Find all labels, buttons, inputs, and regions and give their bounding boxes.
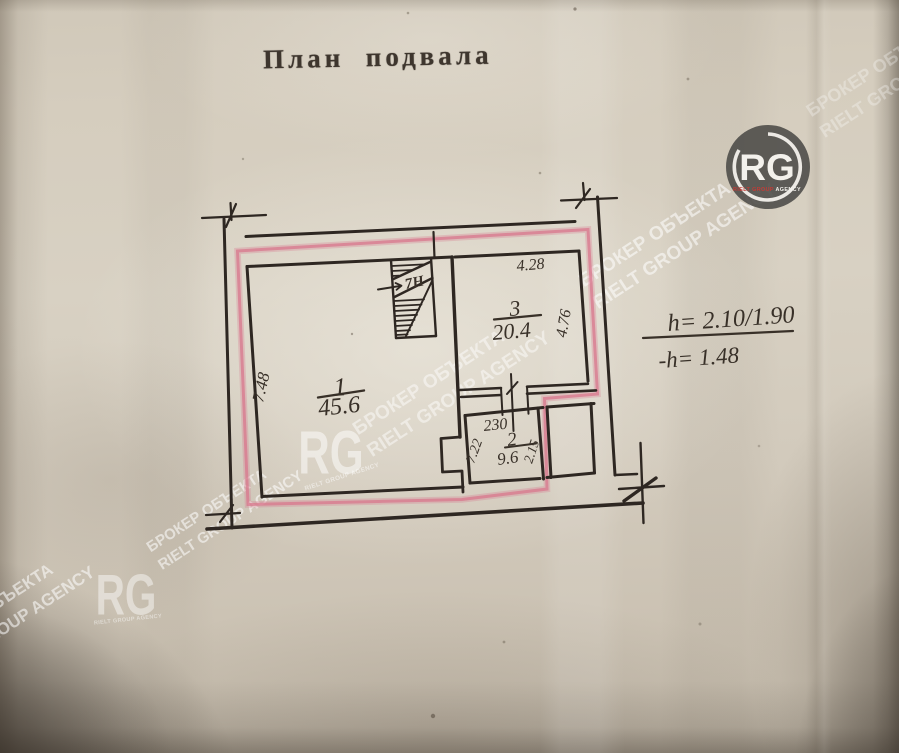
svg-text:4.76: 4.76: [553, 308, 575, 339]
svg-text:-h= 1.48: -h= 1.48: [658, 342, 741, 373]
svg-text:7Н: 7Н: [404, 273, 427, 293]
svg-text:230: 230: [483, 416, 509, 435]
svg-text:4.28: 4.28: [516, 256, 545, 275]
svg-text:45.6: 45.6: [317, 392, 361, 422]
svg-text:9.6: 9.6: [496, 447, 520, 469]
svg-text:20.4: 20.4: [491, 317, 532, 345]
svg-text:7.48: 7.48: [248, 370, 273, 404]
svg-text:2.15: 2.15: [521, 438, 543, 465]
